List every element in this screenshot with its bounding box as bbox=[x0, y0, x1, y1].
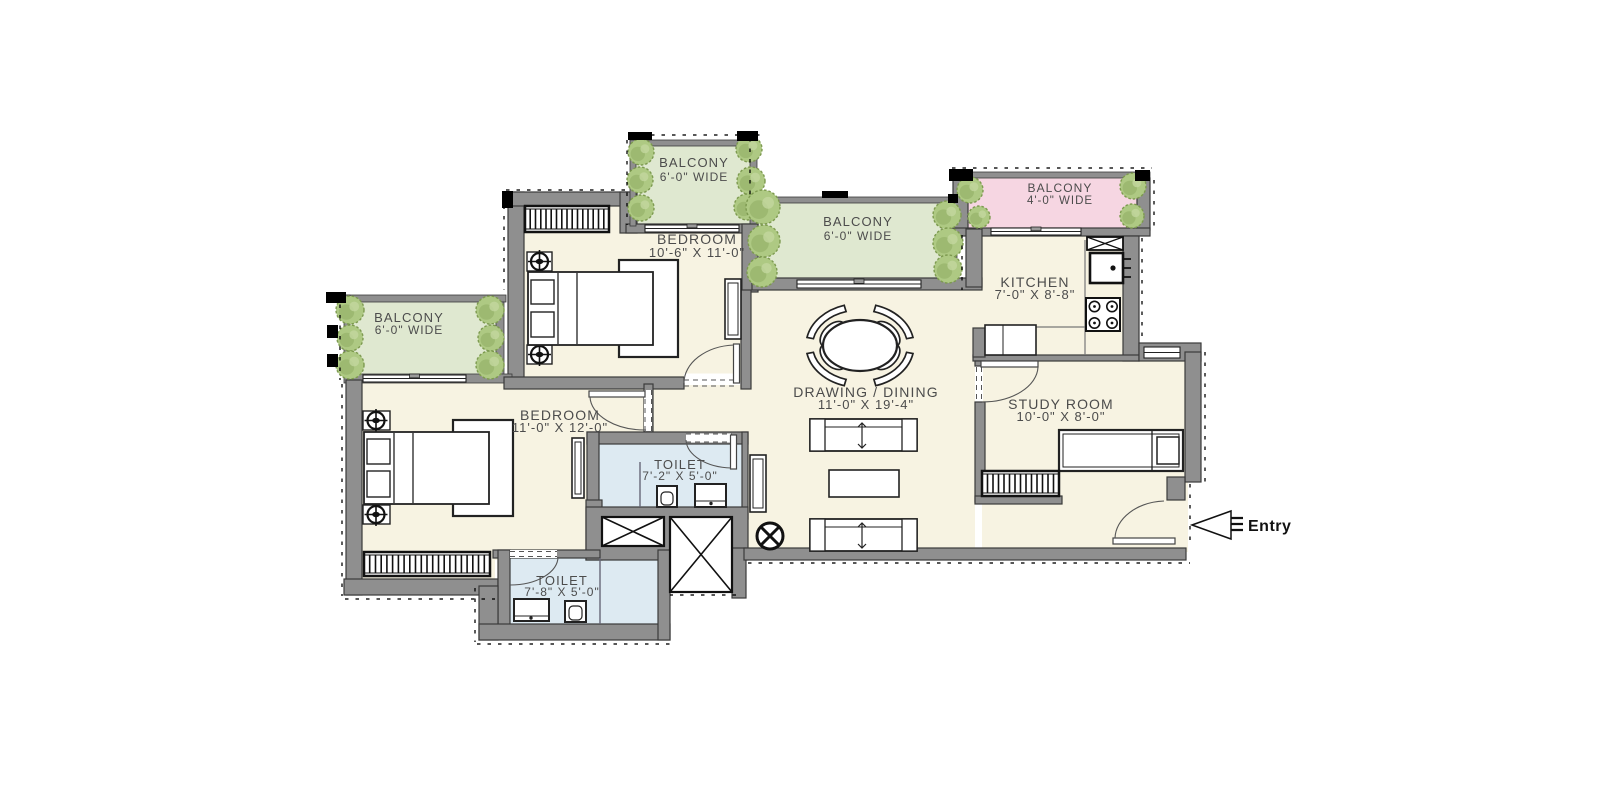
svg-text:BALCONY: BALCONY bbox=[1027, 181, 1092, 195]
svg-text:6'-0" WIDE: 6'-0" WIDE bbox=[824, 229, 893, 243]
svg-text:BALCONY: BALCONY bbox=[659, 155, 729, 170]
svg-text:11'-0" X 19'-4": 11'-0" X 19'-4" bbox=[818, 397, 914, 412]
svg-text:4'-0" WIDE: 4'-0" WIDE bbox=[1027, 195, 1093, 207]
svg-text:7'-2" X 5'-0": 7'-2" X 5'-0" bbox=[642, 469, 717, 483]
svg-text:6'-0" WIDE: 6'-0" WIDE bbox=[375, 323, 444, 337]
svg-text:10'-6" X 11'-0": 10'-6" X 11'-0" bbox=[649, 245, 745, 260]
svg-text:6'-0" WIDE: 6'-0" WIDE bbox=[660, 170, 729, 184]
svg-text:Entry: Entry bbox=[1248, 518, 1291, 535]
svg-text:BALCONY: BALCONY bbox=[823, 214, 893, 229]
svg-text:7'-8" X 5'-0": 7'-8" X 5'-0" bbox=[524, 585, 599, 599]
svg-text:11'-0" X 12'-0": 11'-0" X 12'-0" bbox=[512, 420, 608, 435]
svg-text:10'-0" X 8'-0": 10'-0" X 8'-0" bbox=[1017, 409, 1106, 424]
svg-text:7'-0" X 8'-8": 7'-0" X 8'-8" bbox=[995, 287, 1076, 302]
